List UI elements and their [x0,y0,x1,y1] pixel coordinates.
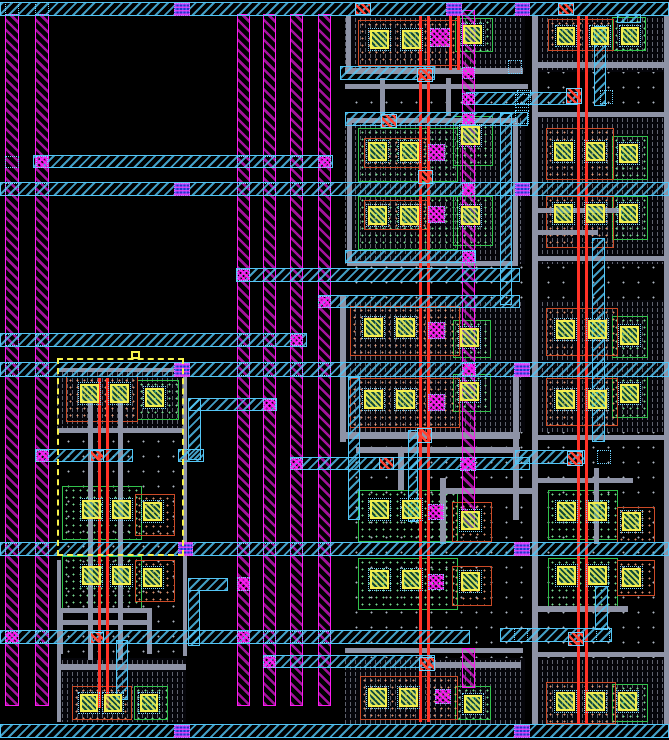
contact-via[interactable] [461,206,480,225]
via-m1-m2[interactable] [428,574,444,590]
diff-contact-red[interactable] [418,170,433,184]
contact-via[interactable] [622,568,641,587]
metal1-wire[interactable] [188,398,201,460]
via-outline-box[interactable] [35,543,49,556]
via-m1-m2[interactable] [318,296,331,308]
via-m1-m2[interactable] [462,113,475,125]
metal1-wire[interactable] [0,724,669,738]
poly-wire[interactable] [356,447,520,453]
via-outline-box[interactable] [290,631,303,643]
contact-via[interactable] [400,142,419,161]
selection-origin-marker[interactable] [131,351,140,359]
contact-via[interactable] [620,326,639,345]
via-outline-box[interactable] [5,334,19,346]
diff-contact-red[interactable] [355,3,371,15]
metal1-wire[interactable] [595,586,608,630]
contact-via[interactable] [370,570,389,589]
contact-via[interactable] [556,692,575,711]
via-outline-box[interactable] [318,631,331,643]
via-outline-box[interactable] [318,363,331,376]
via-m1-m2[interactable] [5,631,19,643]
contact-via[interactable] [554,204,573,223]
diff-contact-red[interactable] [566,88,582,104]
contact-via[interactable] [591,27,609,45]
contact-via[interactable] [402,570,421,589]
contact-via[interactable] [621,27,639,45]
diff-contact-red[interactable] [558,3,574,15]
via-outline-box[interactable] [5,543,19,556]
via-outline-box[interactable] [596,628,610,642]
metal1-wire[interactable] [33,155,333,168]
contact-via[interactable] [399,688,418,707]
contact-via[interactable] [396,390,415,409]
contact-via[interactable] [556,320,575,339]
diff-contact-red[interactable] [417,68,433,82]
poly-wire[interactable] [345,648,523,653]
via-outline-box[interactable] [600,90,613,104]
contact-via[interactable] [400,206,419,225]
via-outline-box[interactable] [597,450,611,464]
via-m1-m2[interactable] [263,656,276,668]
contact-via[interactable] [618,692,637,711]
via-m1-m2[interactable] [237,269,250,281]
via-m2-m3[interactable] [515,3,530,16]
via-outline-box[interactable] [263,183,276,196]
metal2-stripe[interactable] [290,14,303,706]
poly-wire[interactable] [440,488,535,494]
via-m1-m2[interactable] [237,631,250,643]
contact-via[interactable] [464,695,482,713]
via-outline-box[interactable] [35,334,49,346]
contact-via[interactable] [557,502,576,521]
via-outline-box[interactable] [5,183,19,196]
poly-wire[interactable] [345,84,528,89]
via-m1-m2[interactable] [462,93,475,105]
contact-via[interactable] [461,126,480,145]
contact-via[interactable] [586,204,605,223]
via-outline-box[interactable] [5,156,19,168]
metal2-stripe[interactable] [318,14,331,706]
via-outline-box[interactable] [318,183,331,196]
via-m1-m2[interactable] [435,689,451,704]
metal1-wire[interactable] [348,377,360,520]
contact-via[interactable] [619,204,638,223]
contact-via[interactable] [104,694,122,712]
contact-via[interactable] [588,566,607,585]
via-outline-box[interactable] [263,543,276,556]
contact-via[interactable] [463,25,482,44]
diff-contact-red[interactable] [567,451,583,466]
via-outline-box[interactable] [237,543,250,556]
via-outline-box[interactable] [515,110,529,124]
diff-contact-red[interactable] [419,657,435,671]
via-outline-box[interactable] [35,183,49,196]
via-outline-box[interactable] [5,363,19,376]
via-outline-box[interactable] [35,2,49,15]
via-m1-m2[interactable] [318,156,331,168]
contact-via[interactable] [364,318,383,337]
contact-via[interactable] [140,694,158,712]
via-outline-box[interactable] [290,156,303,168]
via-outline-box[interactable] [5,2,19,15]
via-outline-box[interactable] [508,60,522,74]
via-m1-m2[interactable] [460,457,476,471]
layout-canvas[interactable] [0,0,669,740]
via-outline-box[interactable] [517,90,531,104]
contact-via[interactable] [80,694,98,712]
via-outline-box[interactable] [290,363,303,376]
contact-via[interactable] [622,512,641,531]
via-m2-m3[interactable] [515,183,530,196]
contact-via[interactable] [556,390,575,409]
contact-via[interactable] [460,328,479,347]
poly-wire[interactable] [538,112,664,117]
via-m1-m2[interactable] [263,399,276,411]
via-m1-m2[interactable] [290,458,303,470]
metal1-wire[interactable] [0,630,470,644]
via-outline-box[interactable] [318,543,331,556]
via-m1-m2[interactable] [462,67,475,79]
contact-via[interactable] [368,142,387,161]
poly-wire[interactable] [538,652,664,657]
metal1-wire[interactable] [236,268,520,282]
via-m1-m2[interactable] [428,394,445,411]
metal2-stripe[interactable] [35,14,49,706]
metal2-stripe[interactable] [5,14,19,706]
via-m2-m3[interactable] [514,363,530,377]
contact-via[interactable] [586,142,605,161]
contact-via[interactable] [557,27,575,45]
metal1-wire[interactable] [318,295,520,308]
contact-via[interactable] [368,206,387,225]
red-wire[interactable] [457,16,460,70]
via-outline-box[interactable] [514,628,528,642]
diff-contact-red[interactable] [381,114,397,128]
via-outline-box[interactable] [263,631,276,643]
metal1-wire[interactable] [592,238,605,442]
contact-via[interactable] [402,500,421,519]
poly-wire[interactable] [538,606,628,612]
via-outline-box[interactable] [237,363,250,376]
metal2-stripe[interactable] [237,14,250,706]
diff-contact-red[interactable] [379,457,394,470]
metal1-wire[interactable] [500,113,512,305]
via-outline-box[interactable] [35,363,49,376]
metal2-stripe[interactable] [263,14,276,706]
via-m1-m2[interactable] [428,206,445,223]
via-m1-m2[interactable] [430,28,450,47]
via-m1-m2[interactable] [428,144,445,161]
via-m2-m3[interactable] [174,725,190,738]
via-m1-m2[interactable] [428,504,444,520]
via-m1-m2[interactable] [290,334,303,346]
contact-via[interactable] [620,384,639,403]
contact-via[interactable] [557,566,576,585]
contact-via[interactable] [461,572,480,591]
contact-via[interactable] [402,30,421,49]
contact-via[interactable] [554,142,573,161]
metal1-wire[interactable] [345,250,476,263]
contact-via[interactable] [370,30,389,49]
poly-wire[interactable] [62,620,148,625]
via-m2-m3[interactable] [174,3,190,16]
contact-via[interactable] [396,318,415,337]
metal1-wire[interactable] [263,655,435,668]
contact-via[interactable] [364,390,383,409]
via-outline-box[interactable] [237,156,250,168]
contact-via[interactable] [619,144,638,163]
via-m2-m3[interactable] [174,183,190,196]
poly-wire[interactable] [538,230,598,235]
poly-wire[interactable] [533,478,633,483]
via-outline-box[interactable] [290,543,303,556]
contact-via[interactable] [460,382,479,401]
contact-via[interactable] [588,320,607,339]
via-m1-m2[interactable] [462,251,475,263]
via-m1-m2[interactable] [237,577,250,591]
via-outline-box[interactable] [290,183,303,196]
metal2-stripe[interactable] [462,648,475,688]
contact-via[interactable] [586,692,605,711]
via-outline-box[interactable] [263,363,276,376]
metal1-wire[interactable] [188,590,200,646]
contact-via[interactable] [112,566,131,585]
via-m1-m2[interactable] [462,363,476,376]
poly-wire[interactable] [446,78,451,116]
via-m1-m2[interactable] [36,450,49,462]
via-outline-box[interactable] [237,183,250,196]
selection-box[interactable] [57,358,184,556]
poly-wire[interactable] [380,78,385,116]
poly-wire[interactable] [538,208,622,213]
contact-via[interactable] [368,688,387,707]
contact-via[interactable] [143,568,162,587]
metal1-wire[interactable] [116,640,128,700]
metal1-wire[interactable] [0,182,669,196]
via-m2-m3[interactable] [446,3,462,16]
via-m1-m2[interactable] [36,156,48,168]
contact-via[interactable] [82,566,101,585]
diff-contact-red[interactable] [417,428,432,443]
via-m2-m3[interactable] [514,542,530,556]
poly-wire[interactable] [433,662,521,668]
via-m1-m2[interactable] [462,183,475,196]
contact-via[interactable] [588,502,607,521]
via-m1-m2[interactable] [428,322,445,339]
poly-wire[interactable] [346,16,351,68]
diff-contact-red[interactable] [568,632,584,646]
contact-via[interactable] [461,511,480,530]
via-outline-box[interactable] [263,334,276,346]
diff-contact-red[interactable] [90,632,104,644]
contact-via[interactable] [588,390,607,409]
via-outline-box[interactable] [263,156,276,168]
metal1-wire[interactable] [617,14,641,23]
via-outline-box[interactable] [35,631,49,643]
via-outline-box[interactable] [237,334,250,346]
via-m2-m3[interactable] [514,725,530,738]
contact-via[interactable] [370,500,389,519]
poly-wire[interactable] [58,608,152,613]
